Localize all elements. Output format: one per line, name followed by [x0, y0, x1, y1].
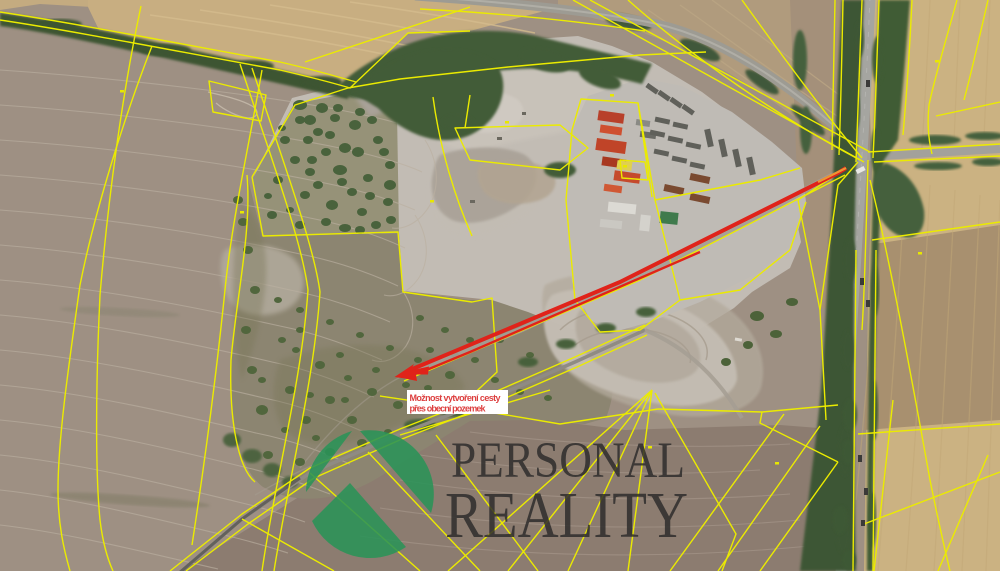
svg-text:přes obecní pozemek: přes obecní pozemek — [410, 404, 487, 414]
svg-text:Možnost vytvoření cesty: Možnost vytvoření cesty — [410, 393, 501, 403]
svg-text:REALITY: REALITY — [445, 479, 688, 552]
